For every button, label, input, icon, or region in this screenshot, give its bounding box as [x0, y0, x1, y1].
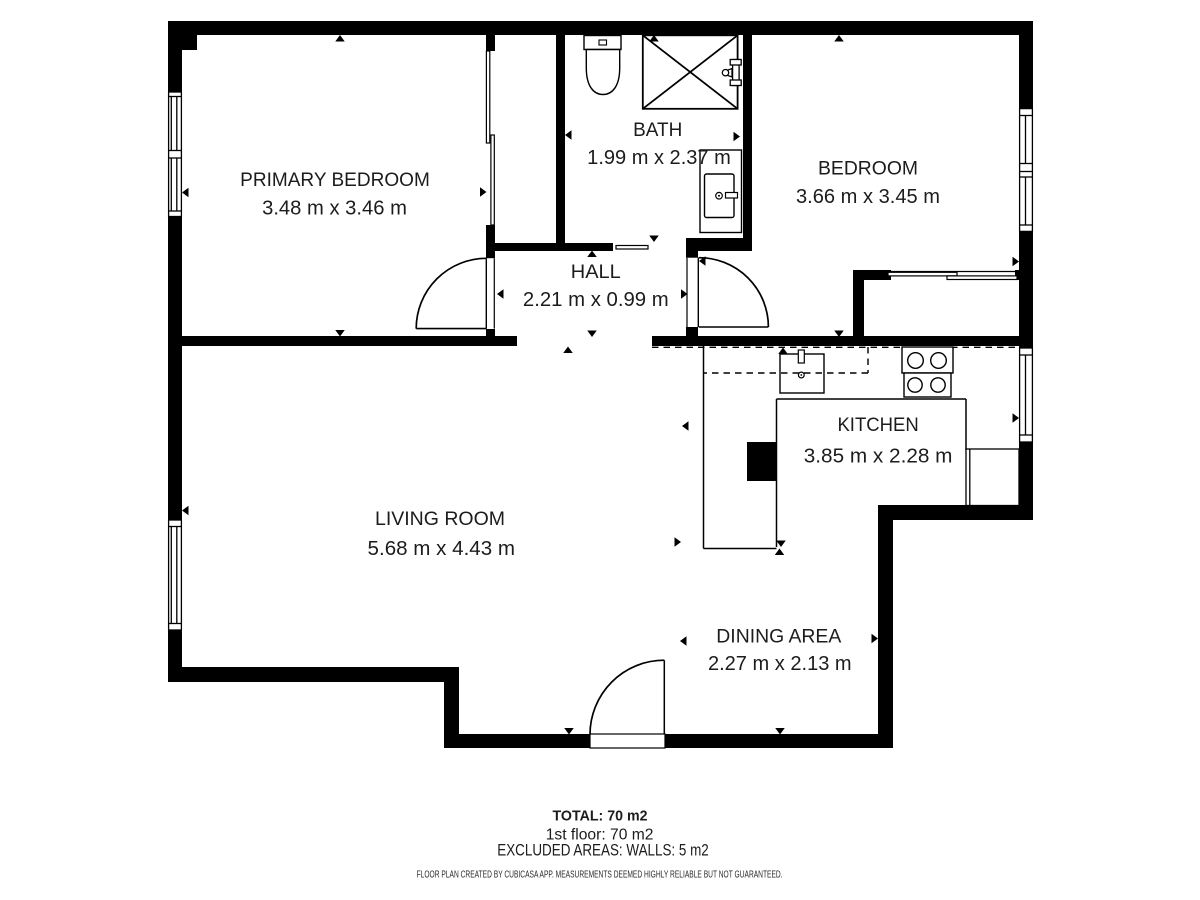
svg-text:BATH: BATH [633, 119, 682, 141]
svg-text:DINING AREA: DINING AREA [716, 626, 841, 648]
svg-text:BEDROOM: BEDROOM [818, 158, 918, 180]
svg-text:2.21 m x 0.99 m: 2.21 m x 0.99 m [523, 289, 669, 311]
svg-text:HALL: HALL [571, 261, 621, 283]
svg-text:TOTAL: 70 m2: TOTAL: 70 m2 [553, 808, 648, 825]
svg-text:3.48 m x 3.46 m: 3.48 m x 3.46 m [262, 198, 407, 220]
svg-text:3.85 m x 2.28 m: 3.85 m x 2.28 m [804, 446, 953, 468]
svg-text:5.68 m x 4.43 m: 5.68 m x 4.43 m [368, 538, 516, 560]
svg-text:LIVING ROOM: LIVING ROOM [375, 508, 505, 530]
svg-text:FLOOR PLAN CREATED BY CUBICASA: FLOOR PLAN CREATED BY CUBICASA APP. MEAS… [417, 870, 783, 881]
svg-text:2.27 m x 2.13 m: 2.27 m x 2.13 m [708, 653, 852, 675]
svg-text:KITCHEN: KITCHEN [837, 414, 918, 436]
svg-text:3.66 m x 3.45 m: 3.66 m x 3.45 m [796, 186, 940, 208]
svg-text:1.99 m x 2.37 m: 1.99 m x 2.37 m [587, 147, 731, 169]
svg-text:EXCLUDED AREAS: WALLS: 5 m2: EXCLUDED AREAS: WALLS: 5 m2 [497, 842, 709, 860]
svg-text:PRIMARY BEDROOM: PRIMARY BEDROOM [240, 169, 430, 191]
